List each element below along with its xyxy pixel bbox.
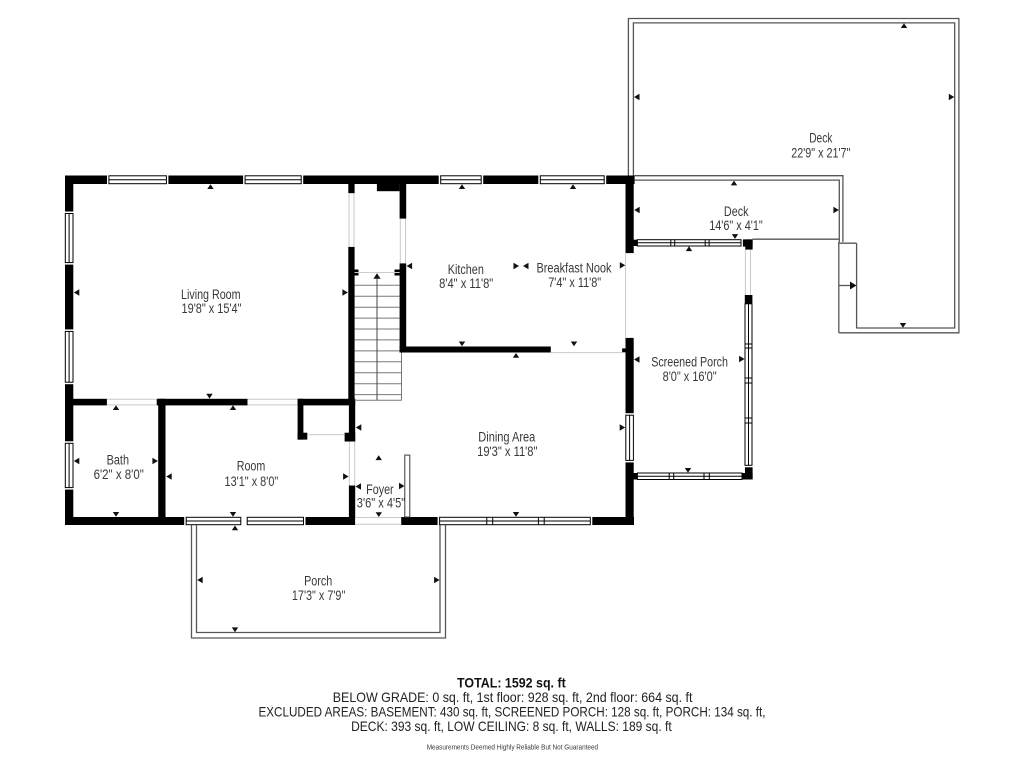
svg-text:8'0" x 16'0": 8'0" x 16'0" <box>663 369 717 384</box>
svg-text:Screened Porch: Screened Porch <box>651 355 728 370</box>
svg-text:Measurements Deemed Highly Rel: Measurements Deemed Highly Reliable But … <box>427 745 598 752</box>
svg-text:Kitchen: Kitchen <box>448 262 484 277</box>
svg-text:Bath: Bath <box>107 452 129 467</box>
svg-text:Living Room: Living Room <box>181 287 241 302</box>
svg-text:Dining Area: Dining Area <box>478 430 535 445</box>
svg-text:19'3" x 11'8": 19'3" x 11'8" <box>477 444 537 459</box>
svg-text:8'4" x 11'8": 8'4" x 11'8" <box>439 276 493 291</box>
svg-text:Breakfast Nook: Breakfast Nook <box>536 261 611 276</box>
svg-text:19'8" x 15'4": 19'8" x 15'4" <box>182 301 242 316</box>
svg-text:6'2" x 8'0": 6'2" x 8'0" <box>94 467 144 482</box>
svg-text:Porch: Porch <box>304 574 332 589</box>
svg-text:7'4" x 11'8": 7'4" x 11'8" <box>548 275 601 290</box>
svg-text:Room: Room <box>237 459 266 474</box>
svg-text:17'3" x 7'9": 17'3" x 7'9" <box>292 588 346 603</box>
svg-text:Deck: Deck <box>724 204 749 219</box>
svg-text:3'6" x 4'5": 3'6" x 4'5" <box>357 495 406 510</box>
svg-text:13'1" x 8'0": 13'1" x 8'0" <box>225 474 279 489</box>
svg-text:DECK: 393 sq. ft, LOW CEILING:: DECK: 393 sq. ft, LOW CEILING: 8 sq. ft,… <box>351 718 672 734</box>
svg-text:22'9" x 21'7": 22'9" x 21'7" <box>791 145 850 160</box>
svg-text:14'6" x 4'1": 14'6" x 4'1" <box>709 218 763 233</box>
svg-text:Deck: Deck <box>809 131 832 146</box>
